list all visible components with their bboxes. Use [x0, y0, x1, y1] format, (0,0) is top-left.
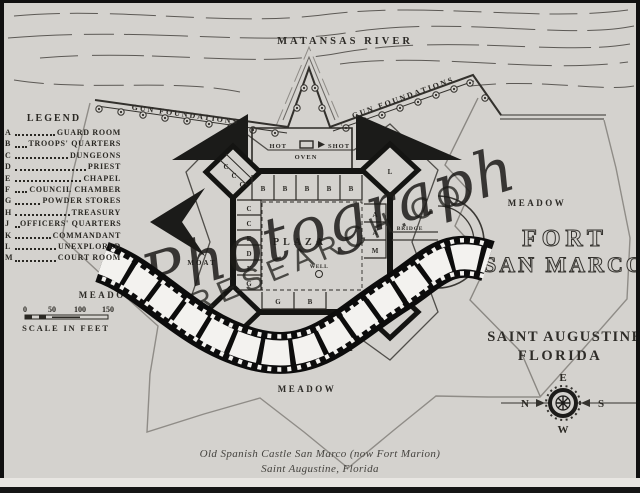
- legend-label: OFFICERS' QUARTERS: [20, 218, 121, 229]
- scale-tick-0: 0: [23, 305, 27, 314]
- svg-text:C: C: [223, 163, 228, 171]
- legend-dots: [15, 214, 70, 216]
- legend-item: DPRIEST: [5, 161, 121, 172]
- meadow-south-label: MEADOW: [278, 384, 337, 394]
- map-title: FORT SAN MARCO SAINT AUGUSTINE FLORIDA: [484, 226, 640, 364]
- legend-dots: [15, 180, 81, 182]
- compass-star-icon: [557, 397, 570, 410]
- caption-line2: Saint Augustine, Florida: [0, 462, 640, 477]
- scale-tick-150: 150: [102, 305, 114, 314]
- legend-key: G: [5, 195, 14, 206]
- svg-text:C: C: [231, 172, 236, 180]
- legend-dots: [15, 157, 68, 159]
- river-label: MATANSAS RIVER: [277, 36, 413, 47]
- legend-key: E: [5, 173, 14, 184]
- legend: LEGEND AGUARD ROOM BTROOPS' QUARTERS CDU…: [5, 113, 121, 264]
- city-line2: FLORIDA: [518, 348, 602, 364]
- legend-item: KCOMMANDANT: [5, 230, 121, 241]
- scanned-map-photo: HOT SHOT OVEN C C C B B B B B C C E D F …: [0, 0, 640, 493]
- legend-label: GUARD ROOM: [57, 127, 121, 138]
- photo-margin-bottom: [0, 478, 640, 487]
- legend-label: PRIEST: [88, 161, 121, 172]
- caption: Old Spanish Castle San Marco (now Fort M…: [0, 447, 640, 477]
- hot-label: HOT: [270, 143, 287, 150]
- well-icon: [316, 271, 323, 278]
- legend-dots: [15, 203, 40, 205]
- legend-item: GPOWDER STORES: [5, 195, 121, 206]
- legend-item: FCOUNCIL CHAMBER: [5, 184, 121, 195]
- legend-key: K: [5, 230, 14, 241]
- scale-tick-50: 50: [48, 305, 56, 314]
- legend-dots: [15, 191, 27, 193]
- legend-key: M: [5, 252, 14, 263]
- compass-e: E: [559, 372, 566, 384]
- oven-label: OVEN: [295, 154, 318, 161]
- svg-text:M: M: [372, 247, 379, 255]
- compass-w: W: [558, 424, 569, 436]
- shot-label: SHOT: [328, 143, 350, 150]
- fort-title-line1: FORT: [522, 226, 608, 252]
- svg-text:G: G: [275, 298, 281, 306]
- svg-text:B: B: [261, 185, 266, 193]
- legend-key: H: [5, 207, 14, 218]
- legend-key: B: [5, 138, 14, 149]
- legend-dots: [15, 237, 51, 239]
- legend-label: POWDER STORES: [42, 195, 121, 206]
- legend-item: MCOURT ROOM: [5, 252, 121, 263]
- legend-label: CHAPEL: [83, 173, 121, 184]
- legend-label: DUNGEONS: [70, 150, 121, 161]
- legend-item: ECHAPEL: [5, 173, 121, 184]
- photo-edge-left: [0, 0, 4, 493]
- legend-item: AGUARD ROOM: [5, 127, 121, 138]
- photo-edge-top: [0, 0, 640, 3]
- svg-text:B: B: [283, 185, 288, 193]
- legend-dots: [15, 169, 86, 171]
- legend-title: LEGEND: [5, 113, 121, 124]
- legend-key: L: [5, 241, 14, 252]
- legend-label: TREASURY: [72, 207, 121, 218]
- svg-text:C: C: [239, 181, 244, 189]
- legend-label: COMMANDANT: [53, 230, 121, 241]
- legend-dots: [15, 248, 56, 250]
- legend-key: F: [5, 184, 14, 195]
- gun-battery-wall: [95, 68, 501, 133]
- city-line1: SAINT AUGUSTINE: [487, 329, 640, 345]
- legend-label: COUNCIL CHAMBER: [29, 184, 121, 195]
- legend-key: J: [5, 218, 14, 229]
- scale-tick-100: 100: [74, 305, 86, 314]
- scale-label: SCALE IN FEET: [22, 323, 110, 333]
- scale-bar: 0 50 100 150 SCALE IN FEET: [22, 305, 114, 333]
- legend-dots: [15, 260, 56, 262]
- fort-title-line2: SAN MARCO: [484, 252, 640, 277]
- compass-s: S: [598, 398, 604, 410]
- legend-item: CDUNGEONS: [5, 150, 121, 161]
- oven-arrow-icon: [318, 141, 325, 148]
- legend-label: TROOPS' QUARTERS: [29, 138, 122, 149]
- svg-text:B: B: [308, 298, 313, 306]
- legend-item: LUNEXPLORED: [5, 241, 121, 252]
- photo-edge-bottom: [0, 487, 640, 493]
- gun-foundations-right-label: GUN FOUNDATIONS: [351, 75, 456, 121]
- legend-key: A: [5, 127, 14, 138]
- photo-edge-right: [636, 0, 640, 493]
- legend-label: UNEXPLORED: [58, 241, 121, 252]
- legend-dots: [15, 146, 27, 148]
- legend-item: HTREASURY: [5, 207, 121, 218]
- legend-key: D: [5, 161, 14, 172]
- compass-n: N: [521, 398, 529, 410]
- legend-item: JOFFICERS' QUARTERS: [5, 218, 121, 229]
- caption-line1: Old Spanish Castle San Marco (now Fort M…: [0, 447, 640, 462]
- legend-dots: [15, 226, 18, 228]
- hot-shot-oven: HOT SHOT OVEN: [252, 128, 352, 168]
- legend-key: C: [5, 150, 14, 161]
- legend-dots: [15, 134, 55, 136]
- legend-label: COURT ROOM: [58, 252, 121, 263]
- legend-item: BTROOPS' QUARTERS: [5, 138, 121, 149]
- compass-rose: E N S W: [501, 372, 638, 436]
